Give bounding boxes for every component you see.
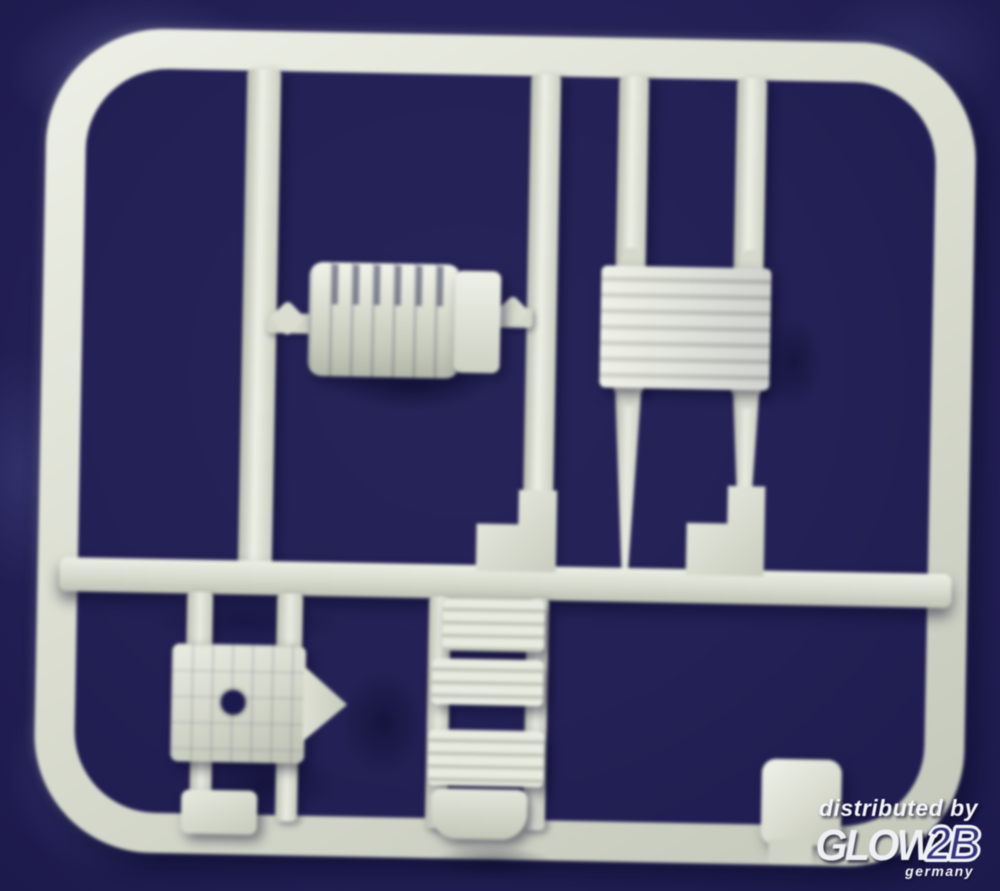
seat-cushion-part bbox=[431, 658, 544, 706]
watermark-brand: GLOW2B bbox=[815, 823, 978, 866]
sprue-group bbox=[0, 0, 1000, 891]
ribbed-radiator-part bbox=[599, 265, 771, 390]
tank-end-cap-part bbox=[454, 271, 502, 374]
watermark-2b-text: 2B bbox=[926, 818, 978, 871]
seat-backrest-part bbox=[442, 598, 545, 652]
sprue-photo: distributed by GLOW2B germany bbox=[0, 0, 1000, 891]
small-block-part bbox=[181, 789, 258, 834]
cab-bottom-right-stub bbox=[275, 759, 298, 821]
watermark-glow-text: GLOW bbox=[815, 821, 932, 870]
cab-top-left-stub bbox=[186, 591, 213, 647]
bench-lower-part bbox=[431, 788, 528, 840]
cab-top-right-stub bbox=[276, 593, 303, 649]
watermark: distributed by GLOW2B germany bbox=[805, 795, 978, 879]
cylindrical-tank-part bbox=[307, 262, 461, 379]
bench-part bbox=[428, 729, 545, 787]
tank-rib-texture bbox=[317, 264, 452, 307]
